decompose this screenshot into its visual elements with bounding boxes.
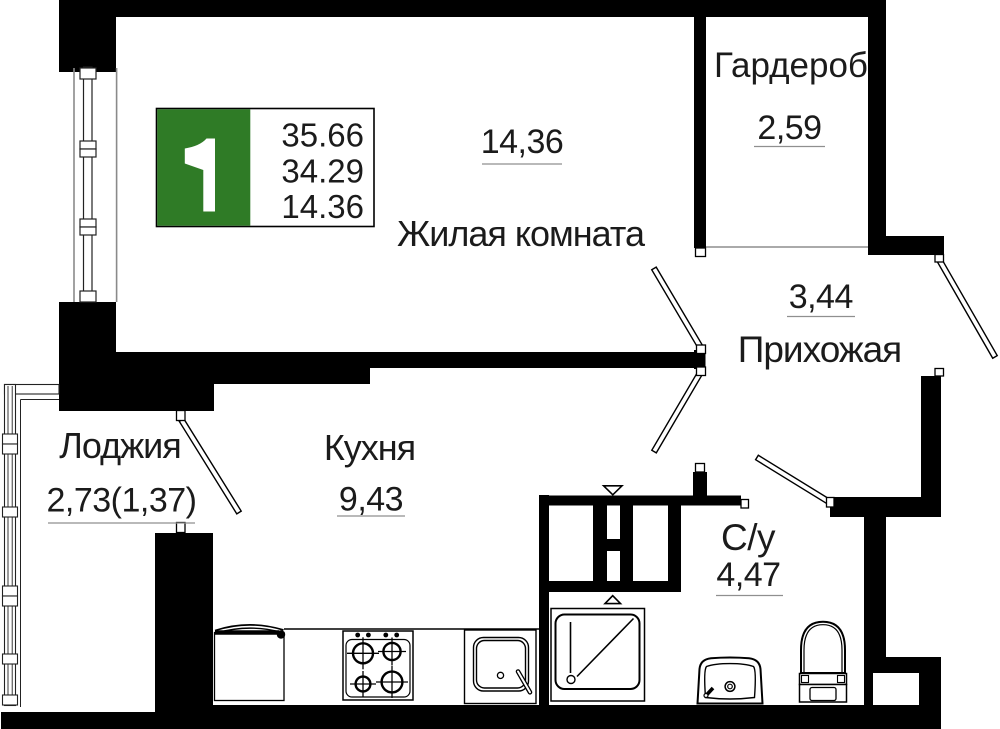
svg-text:Жилая комната: Жилая комната	[397, 213, 646, 254]
svg-text:34.29: 34.29	[281, 153, 364, 190]
svg-text:Прихожая: Прихожая	[738, 329, 901, 370]
svg-text:2,73(1,37): 2,73(1,37)	[47, 482, 197, 520]
svg-text:14.36: 14.36	[281, 188, 364, 225]
svg-text:2,59: 2,59	[757, 109, 821, 147]
svg-text:3,44: 3,44	[789, 278, 853, 316]
svg-text:Гардероб: Гардероб	[714, 46, 868, 85]
svg-text:4,47: 4,47	[716, 556, 780, 594]
svg-text:14,36: 14,36	[481, 123, 564, 161]
svg-text:Кухня: Кухня	[324, 427, 415, 468]
svg-text:С/у: С/у	[721, 517, 776, 558]
svg-text:35.66: 35.66	[281, 117, 364, 154]
svg-text:Лоджия: Лоджия	[59, 425, 181, 466]
svg-text:9,43: 9,43	[339, 481, 403, 519]
